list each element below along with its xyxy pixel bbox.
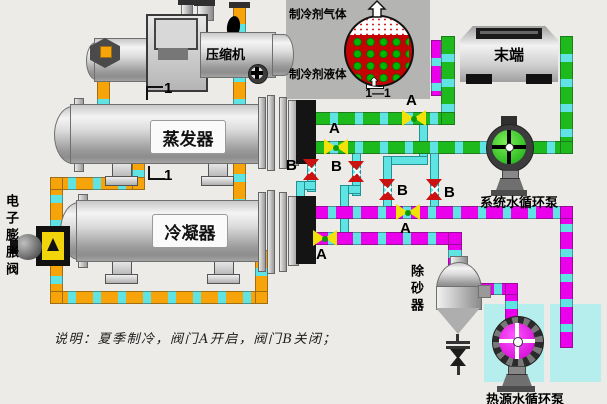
liquid-inlet-arrow-icon xyxy=(369,77,379,86)
sand-remover-label: 除砂器 xyxy=(407,264,426,334)
valve-disc xyxy=(333,145,339,151)
terminal-unit-label: 末端 xyxy=(460,44,558,65)
valve-a-icon xyxy=(324,139,348,156)
terminal-unit-slot-line xyxy=(480,31,538,34)
section-mark-line xyxy=(148,166,165,180)
section-view-title: 1—1 xyxy=(346,86,410,100)
valve-b-icon xyxy=(426,179,443,200)
condenser-foot-plate xyxy=(207,274,240,284)
compressor-top-pipe-cap xyxy=(194,0,215,6)
section-mark-line xyxy=(146,86,163,100)
pipe-elbow xyxy=(50,177,63,190)
valve-a-icon xyxy=(402,110,426,127)
valve-disc xyxy=(405,210,411,216)
valve-b-label: B xyxy=(444,184,455,201)
evaporator-label: 蒸发器 xyxy=(150,120,226,154)
discharge-pipe-cap xyxy=(229,2,250,8)
liquid-line-lower xyxy=(50,291,268,304)
refrigerant-liquid-label: 制冷剂液体 xyxy=(289,66,347,82)
section-mark-1: 1 xyxy=(164,167,172,184)
sand-remover-cone xyxy=(436,308,480,334)
section-mark-1: 1 xyxy=(164,80,172,97)
condenser-label: 冷凝器 xyxy=(152,214,228,248)
condenser-right-flange xyxy=(258,192,266,272)
condenser-right-flange xyxy=(279,192,287,272)
valve-x-icon xyxy=(430,185,440,195)
valve-a-icon xyxy=(396,204,420,221)
tube-bundle-dots xyxy=(349,35,408,81)
compressor-vent-cap xyxy=(178,0,194,5)
pipe-elbow xyxy=(560,141,573,154)
valve-a-label: A xyxy=(329,120,340,137)
pipe-elbow xyxy=(505,283,518,295)
sand-remover-flange xyxy=(446,341,470,344)
system-pump-hub xyxy=(505,143,514,152)
heat-pump-hub xyxy=(513,337,523,347)
valve-b-icon xyxy=(379,179,396,200)
gas-zone xyxy=(346,17,412,35)
valve-x-icon xyxy=(307,165,317,175)
suction-fitting-core xyxy=(100,46,112,58)
compressor-gearbox-cover xyxy=(154,18,198,50)
evaporator-foot-plate xyxy=(105,176,138,186)
valve-b-label: B xyxy=(286,157,297,174)
valve-a-label: A xyxy=(400,220,411,237)
system-pump-label: 系统水循环泵 xyxy=(455,192,583,211)
valve-b-label: B xyxy=(331,158,342,175)
pipe-elbow xyxy=(255,291,268,304)
valve-a-icon xyxy=(313,230,337,247)
valve-a-label: A xyxy=(316,246,327,263)
condenser-right-flange xyxy=(267,190,275,274)
drain-valve-stem xyxy=(457,366,460,375)
valve-b-icon xyxy=(348,161,365,182)
refrigerant-gas-label: 制冷剂气体 xyxy=(289,6,347,22)
valve-x-icon xyxy=(352,167,362,177)
pipe-elbow xyxy=(448,232,462,245)
compressor-gearbox-tray xyxy=(158,48,188,60)
terminal-unit-foot xyxy=(526,74,552,84)
valve-disc xyxy=(322,236,328,242)
drain-valve-icon xyxy=(450,349,467,366)
shell-section-drawing xyxy=(344,15,414,87)
terminal-unit-foot xyxy=(466,74,492,84)
evaporator-right-flange xyxy=(258,97,266,169)
sand-remover-outlet-nozzle xyxy=(478,285,491,298)
evaporator-right-flange xyxy=(267,95,275,171)
heat-pool-riser xyxy=(560,206,573,348)
evaporator-tube-sheet xyxy=(296,100,316,164)
compressor-oil-pump-face xyxy=(251,67,263,79)
valve-a-label: A xyxy=(406,92,417,109)
pipe-elbow xyxy=(50,291,63,304)
legend-note: 说明：夏季制冷，阀门A开启，阀门B关闭； xyxy=(54,328,337,347)
valve-disc xyxy=(411,116,417,122)
compressor-label: 压缩机 xyxy=(206,44,245,63)
expansion-valve-label: 电子膨胀阀 xyxy=(2,194,21,302)
pipe-elbow xyxy=(441,112,455,125)
terminal-right-riser xyxy=(560,36,573,154)
valve-b-icon xyxy=(303,159,320,180)
valve-x-icon xyxy=(383,185,393,195)
gas-outlet-arrow-icon xyxy=(367,0,387,18)
sand-remover-body xyxy=(436,286,482,310)
condenser-foot-plate xyxy=(105,274,138,284)
evaporator-foot-plate xyxy=(201,176,234,186)
hvac-schematic-diagram: 压缩机 蒸发器 冷凝器 电子膨胀阀 1 1 制冷剂气体 制冷剂液体 1—1 xyxy=(0,0,607,404)
heat-pump-label: 热源水循环泵 xyxy=(455,389,595,404)
valve-b-label: B xyxy=(397,182,408,199)
water-pool-right xyxy=(550,304,601,382)
expansion-valve-arrow-icon xyxy=(47,238,59,251)
